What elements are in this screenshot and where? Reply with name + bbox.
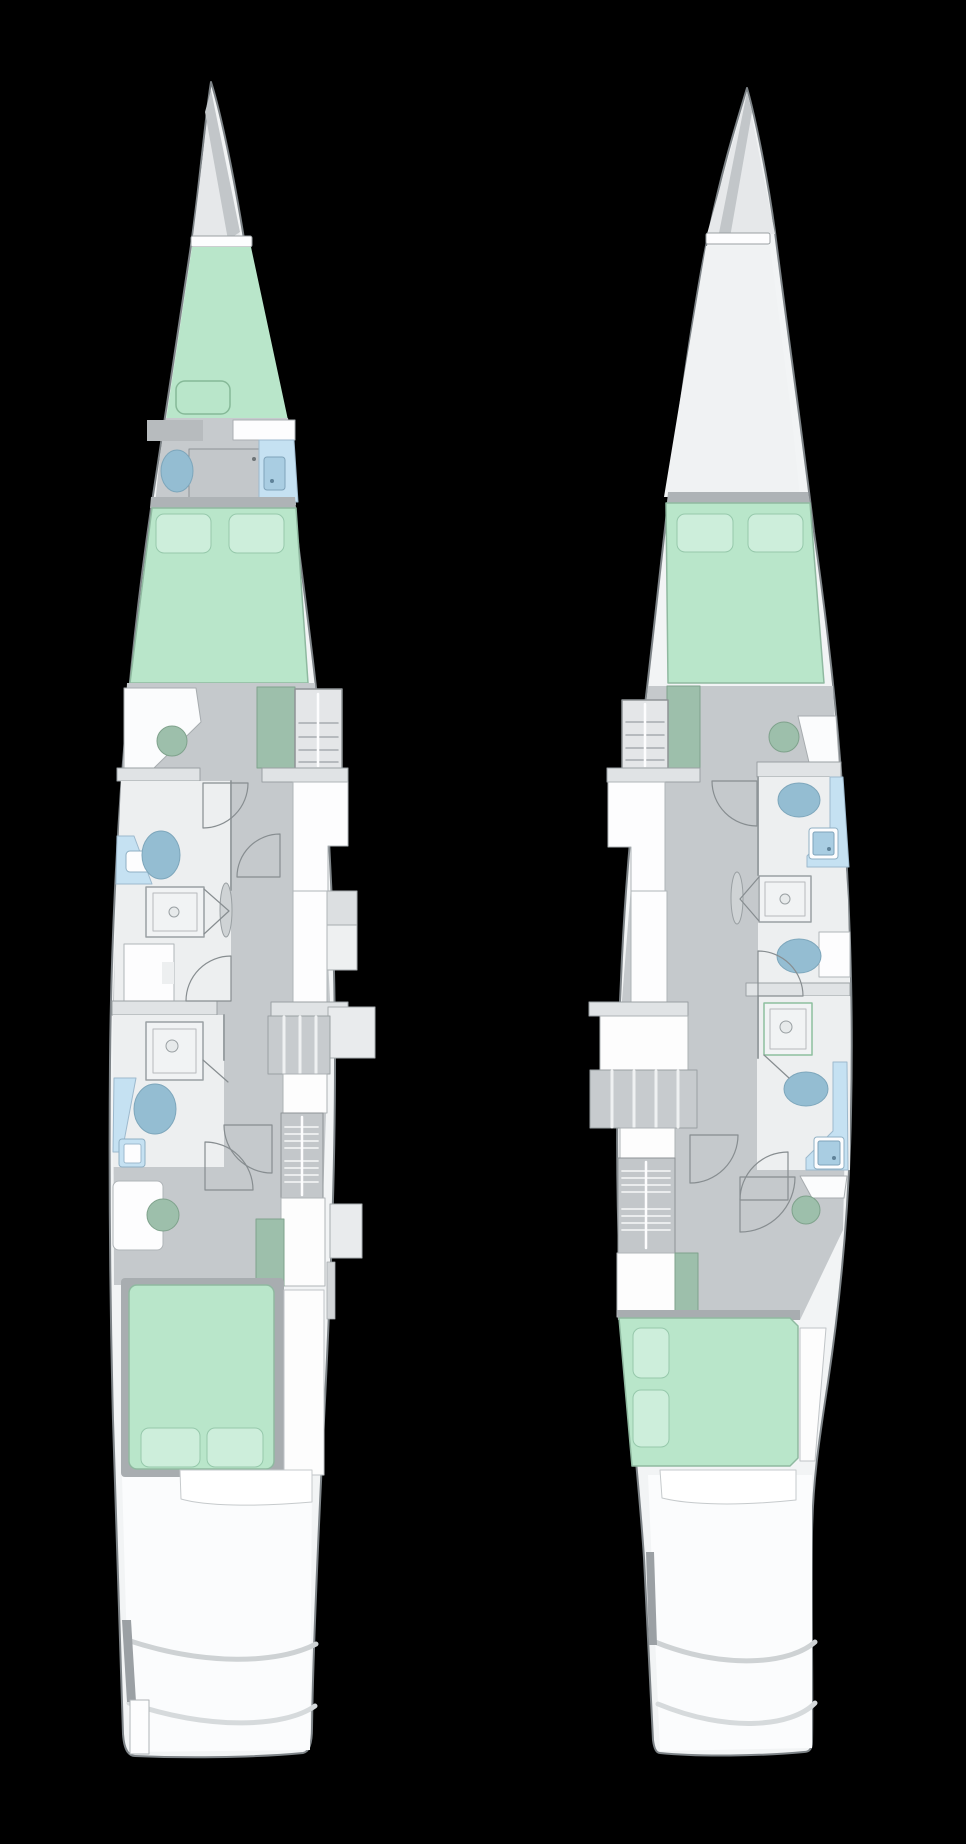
cabinet-run (293, 891, 327, 1003)
shower-drain (166, 1040, 178, 1052)
head-shelf (233, 420, 295, 440)
aft-locker (284, 1290, 324, 1475)
deck-plan-right (589, 88, 852, 1756)
cabinet-run (631, 891, 667, 1003)
toilet (784, 1072, 828, 1106)
berth-headboard (667, 492, 810, 503)
stool-seat (157, 726, 187, 756)
shelf (262, 768, 348, 782)
basin-drain (832, 1156, 836, 1160)
basin-drain (270, 479, 274, 483)
pillow (748, 514, 803, 552)
shower-drain (169, 907, 179, 917)
stair-flight (590, 1070, 697, 1128)
pillow (633, 1390, 669, 1447)
shelf (607, 768, 700, 782)
locker (323, 891, 357, 925)
wardrobe (667, 686, 700, 768)
stern-seat (180, 1470, 312, 1505)
door-leaf (220, 883, 232, 937)
shelf (589, 1002, 688, 1016)
side-module (328, 1007, 375, 1058)
cabinet (620, 1128, 675, 1158)
basin-drain (827, 847, 831, 851)
shower-drain (780, 894, 790, 904)
head-cabinet (189, 449, 262, 499)
washbasin (124, 1144, 141, 1163)
stern-seat (660, 1470, 796, 1504)
pillow (207, 1428, 263, 1467)
pillow (141, 1428, 200, 1467)
cabinet (281, 1198, 325, 1286)
wardrobe (257, 687, 295, 768)
shelf (757, 762, 841, 777)
cabinet (617, 1253, 675, 1317)
head-step (147, 420, 203, 441)
wardrobe (256, 1219, 284, 1286)
bow-bulkhead (706, 233, 770, 244)
stern-locker-small (130, 1700, 149, 1754)
wardrobe (675, 1253, 698, 1317)
toilet (778, 783, 820, 817)
floorplan-stage (0, 0, 966, 1844)
stool-seat (792, 1196, 820, 1224)
washbasin (813, 832, 834, 855)
side-rail (327, 1262, 335, 1319)
shower-drain (780, 1021, 792, 1033)
toilet (134, 1084, 176, 1134)
cabinet (600, 1016, 688, 1070)
pillow (633, 1328, 669, 1378)
washbasin (818, 1141, 840, 1165)
sideboard (608, 782, 665, 891)
closet (819, 932, 850, 977)
forepeak-cushion (176, 381, 230, 414)
stool-seat (769, 722, 799, 752)
pillow (156, 514, 211, 553)
stool-seat (147, 1199, 179, 1231)
sideboard (293, 782, 348, 891)
side-module (327, 925, 357, 970)
cabinet (283, 1074, 327, 1113)
toilet (161, 450, 193, 492)
cabinet-knob (252, 457, 256, 461)
closet-notch (162, 962, 174, 984)
toilet (777, 939, 821, 973)
shelf (746, 983, 850, 996)
deck-plan-left (110, 82, 375, 1757)
berth-headboard (150, 497, 296, 508)
toilet (142, 831, 180, 879)
side-module (330, 1204, 362, 1258)
pillow (229, 514, 284, 553)
shelf (112, 1001, 217, 1015)
washbasin (264, 457, 285, 490)
pillow (677, 514, 733, 552)
yacht-deck-plans (0, 0, 966, 1844)
shelf (117, 768, 200, 781)
bow-bulkhead (191, 236, 252, 247)
